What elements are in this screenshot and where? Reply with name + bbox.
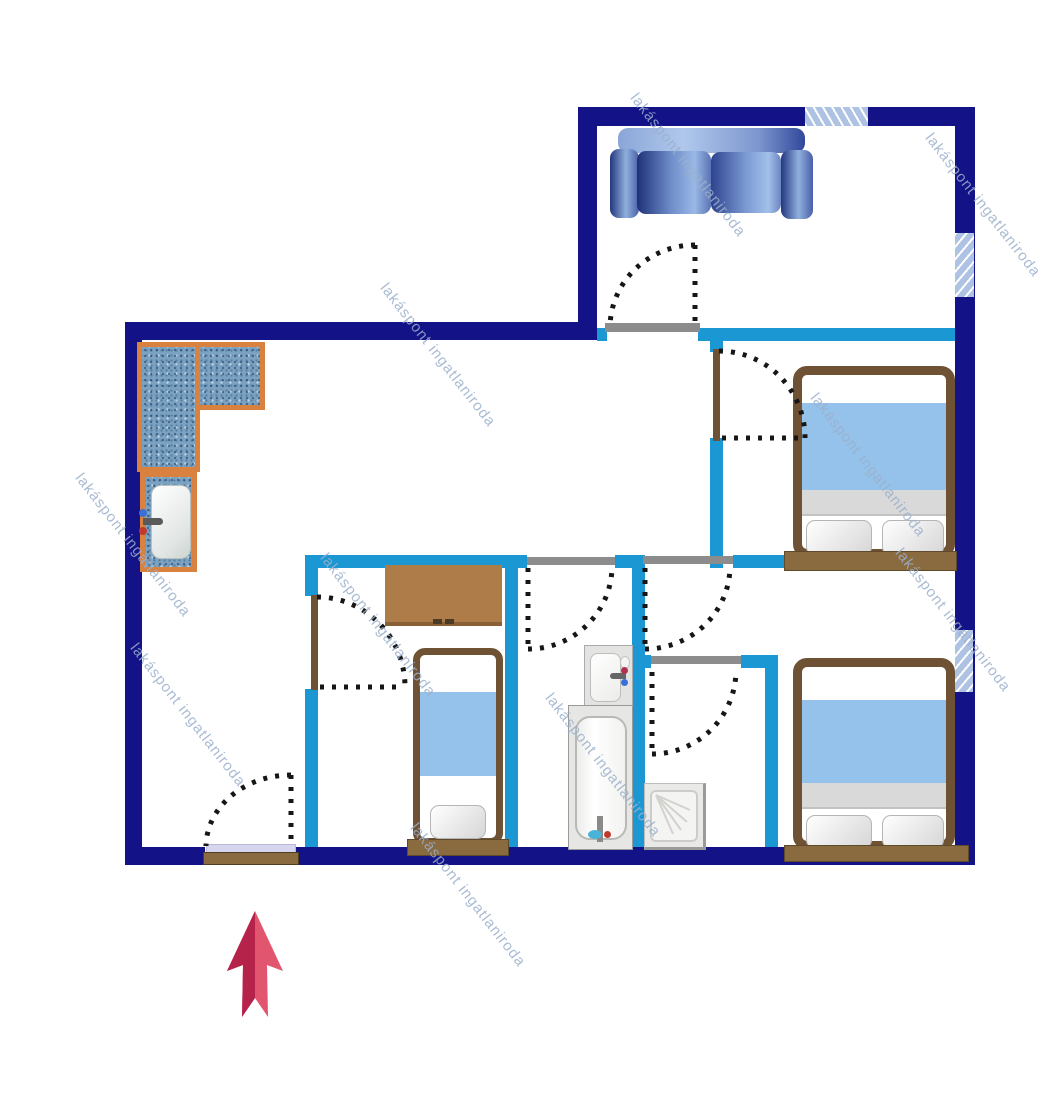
- double-bed-2-base: [784, 845, 969, 862]
- double-bed-1-blanket: [802, 403, 946, 490]
- single-bed-base: [407, 839, 509, 856]
- bathtub: [568, 705, 633, 850]
- sofa-armrest-right: [781, 150, 813, 219]
- window-right-lower: [955, 630, 973, 692]
- single-bed-blanket: [420, 692, 496, 776]
- floor-plan: lakáspont ingatlaniroda lakáspont ingatl…: [0, 0, 1060, 1100]
- entrance-door-threshold: [203, 852, 299, 865]
- wall-small-bedroom-west-top: [305, 555, 318, 596]
- bedroom1-door-leaf: [713, 349, 720, 441]
- wall-wc-east: [765, 655, 778, 847]
- wall-living-south-right: [698, 328, 955, 341]
- watermark-text: lakáspont ingatlaniroda: [127, 640, 250, 790]
- single-bed-pillow: [430, 805, 486, 839]
- sofa-cushion-right: [711, 152, 781, 213]
- double-bed-2-blanket: [802, 700, 946, 783]
- entrance-arrow-shade: [227, 911, 255, 1017]
- desk-handle-right: [445, 619, 454, 624]
- wall-small-bedroom-west-bottom: [305, 689, 318, 847]
- sofa-cushion-left: [637, 151, 711, 214]
- wall-bedroom1-west-bottom: [710, 438, 723, 568]
- desk: [385, 565, 502, 626]
- kitchen-counter-joint: [142, 347, 185, 457]
- double-bed-1-base: [784, 551, 957, 571]
- kitchen-sink-unit: [140, 472, 197, 572]
- shower-tray: [644, 783, 706, 850]
- entrance-arrow: [215, 905, 295, 1025]
- double-bed-1: [793, 366, 955, 558]
- double-bed-2: [793, 658, 955, 850]
- exterior-wall-living-left: [578, 107, 597, 340]
- small-bedroom-door-leaf: [311, 595, 318, 690]
- exterior-wall-right: [955, 107, 975, 865]
- double-bed-2-pillow-right: [882, 815, 944, 849]
- shower-spray-icon: [645, 784, 703, 847]
- single-bed: [413, 648, 503, 845]
- washbasin-tap-cold: [621, 679, 628, 686]
- bathroom-door-lintel: [527, 557, 615, 565]
- wall-wc-north-left: [640, 655, 651, 668]
- washbasin-tap-hot: [621, 667, 628, 674]
- sofa: [610, 128, 813, 219]
- exterior-wall-top: [578, 107, 975, 126]
- entrance-door-arc: [206, 775, 291, 846]
- vestibule-door-lintel: [643, 556, 733, 564]
- sofa-back: [618, 128, 805, 153]
- bathtub-tap-cold: [588, 830, 602, 839]
- desk-handle-left: [433, 619, 442, 624]
- double-bed-2-sheet: [802, 783, 946, 809]
- bathtub-tap-hot: [604, 831, 611, 838]
- window-top: [805, 107, 868, 126]
- wall-mid-horizontal-right: [733, 555, 785, 568]
- kitchen-tap-hot: [139, 527, 147, 535]
- exterior-wall-bottom-left: [125, 847, 205, 865]
- sofa-armrest-left: [610, 149, 639, 218]
- wc-door-lintel: [651, 656, 741, 664]
- washbasin: [584, 645, 633, 708]
- living-room-door-threshold: [605, 323, 700, 332]
- wall-bathroom-west: [505, 555, 518, 847]
- double-bed-2-pillow-left: [806, 815, 872, 849]
- exterior-wall-upper-mid: [125, 322, 597, 340]
- window-right-upper: [955, 233, 974, 297]
- kitchen-tap-cold: [139, 509, 147, 517]
- double-bed-1-sheet: [802, 490, 946, 516]
- vestibule: [645, 568, 765, 655]
- kitchen-faucet: [143, 518, 163, 525]
